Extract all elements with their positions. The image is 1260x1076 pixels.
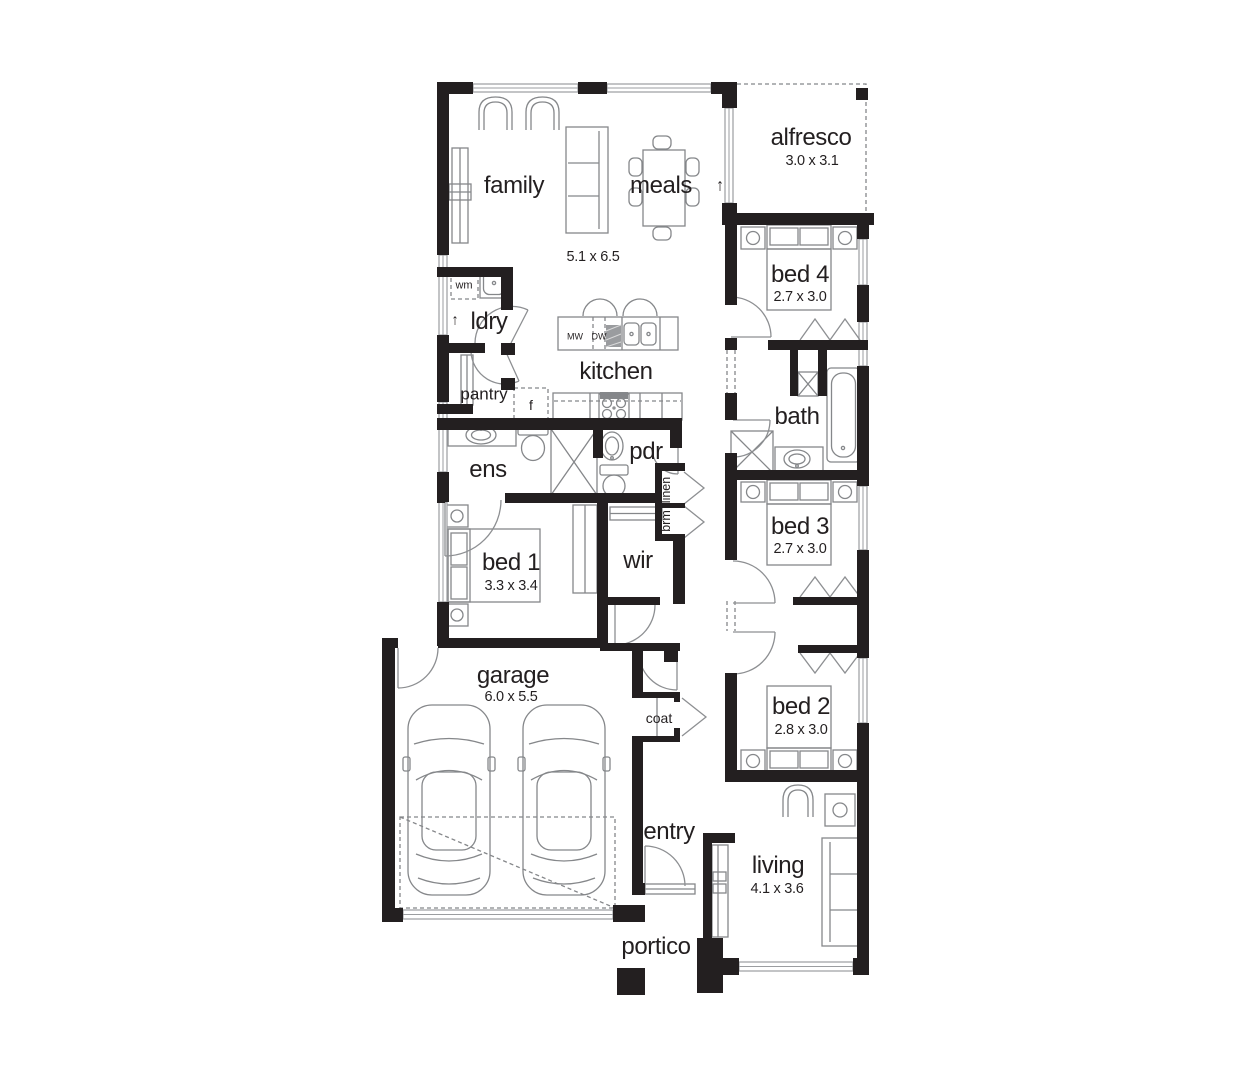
hall-niche-and-cabinet xyxy=(783,785,855,826)
washing-machine-label: wm xyxy=(455,281,472,292)
bed2-label: bed 2 xyxy=(772,695,830,719)
fridge-label: f xyxy=(529,398,533,412)
living-label: living xyxy=(752,854,804,878)
garage-cars xyxy=(403,705,610,895)
wir-label: wir xyxy=(623,549,652,573)
alfresco-size: 3.0 x 3.1 xyxy=(786,154,839,169)
broom-label: brm xyxy=(660,510,673,532)
bed3-label: bed 3 xyxy=(771,515,829,539)
bed1-size: 3.3 x 3.4 xyxy=(485,579,538,594)
ensuite-label: ens xyxy=(469,458,507,482)
bed3-size: 2.7 x 3.0 xyxy=(774,542,827,557)
family-meals-size: 5.1 x 6.5 xyxy=(567,250,620,265)
dishwasher-label: DW xyxy=(592,333,607,342)
bed1-label: bed 1 xyxy=(482,551,540,575)
bed4-label: bed 4 xyxy=(771,263,829,287)
laundry-label: ldry xyxy=(470,310,507,334)
microwave-label: MW xyxy=(567,333,583,342)
kitchen-bench xyxy=(553,392,682,420)
alfresco-dashed-outline xyxy=(737,84,866,218)
kitchen-island xyxy=(558,299,678,350)
bed2-size: 2.8 x 3.0 xyxy=(775,723,828,738)
entry-threshold xyxy=(645,884,695,894)
laundry-up-arrow-icon: ↑ xyxy=(451,313,459,328)
family-furniture xyxy=(449,97,608,243)
coat-label: coat xyxy=(646,711,672,725)
powder-fixtures xyxy=(600,432,628,497)
pantry-label: pantry xyxy=(460,386,507,403)
kitchen-label: kitchen xyxy=(579,360,652,384)
powder-label: pdr xyxy=(629,440,663,464)
entry-label: entry xyxy=(643,820,694,844)
bed4-size: 2.7 x 3.0 xyxy=(774,290,827,305)
floor-plan-drawing xyxy=(0,0,1260,1076)
garage-label: garage xyxy=(477,664,549,688)
linen-label: linen xyxy=(660,477,673,503)
floor-plan: family meals ↑ 5.1 x 6.5 alfresco 3.0 x … xyxy=(0,0,1260,1076)
family-label: family xyxy=(484,174,544,198)
meals-up-arrow-icon: ↑ xyxy=(716,177,725,194)
garage-size: 6.0 x 5.5 xyxy=(485,690,538,705)
meals-label: meals xyxy=(630,174,692,198)
alfresco-label: alfresco xyxy=(771,126,852,150)
bath-label: bath xyxy=(774,405,819,429)
living-size: 4.1 x 3.6 xyxy=(751,882,804,897)
portico-label: portico xyxy=(621,935,690,959)
